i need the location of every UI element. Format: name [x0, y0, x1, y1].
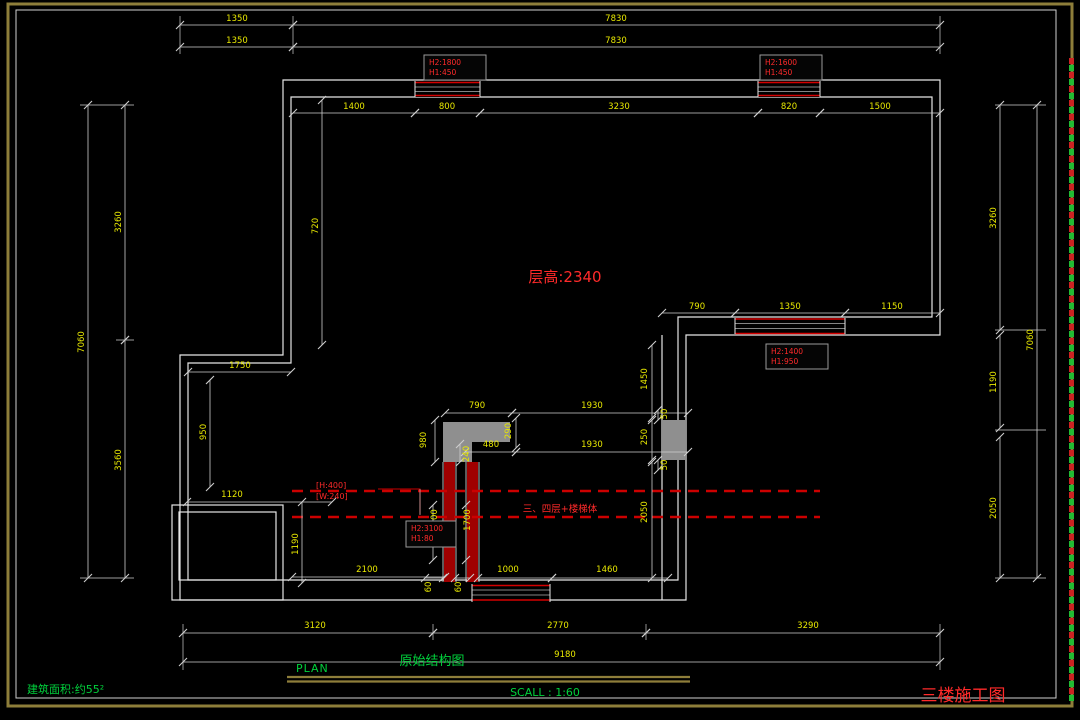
window-spec-box: H2:1400H1:950 — [766, 344, 828, 369]
floor-height-label: 层高:2340 — [528, 268, 601, 286]
dimension: 3560 — [114, 336, 129, 582]
dimension: 1500 — [816, 102, 944, 117]
dimension-label: 3560 — [114, 449, 124, 471]
dimension-label: 60 — [424, 582, 434, 593]
dimension: 3290 — [642, 621, 944, 637]
dimension-label: 790 — [469, 401, 485, 411]
dimension-label: 1460 — [596, 565, 618, 575]
dimension: 3260 — [114, 101, 129, 344]
beam-note-leader — [378, 489, 420, 514]
dimension: 3230 — [476, 102, 762, 117]
column-L-top — [443, 422, 510, 442]
dimension-label: 2050 — [640, 501, 650, 523]
dimension-label: 1400 — [343, 102, 365, 112]
dimension: 1350 — [176, 36, 297, 51]
dimension-label: 60 — [454, 582, 464, 593]
extension-lines — [80, 16, 1046, 670]
dimension-label: 290 — [504, 423, 514, 439]
window-mid-right — [735, 318, 845, 334]
dimension-label: 790 — [689, 302, 705, 312]
dimension-label: 9180 — [554, 650, 576, 660]
dimension-label: 240 — [462, 446, 472, 462]
dimension-label: 2050 — [989, 497, 999, 519]
window-top-right — [758, 81, 820, 97]
dimension-label: 7830 — [605, 36, 627, 46]
dimension: 2050 — [989, 433, 1004, 582]
dimension: 1400 — [289, 102, 419, 117]
dimension: 3260 — [989, 101, 1004, 334]
window-spec-line2: H1:450 — [765, 68, 792, 77]
window-spec-line1: H2:1400 — [771, 347, 803, 356]
dimension: 290 — [504, 414, 520, 452]
dimension-label: 7060 — [1026, 329, 1036, 351]
window-bottom — [472, 584, 550, 602]
dimension-label: 1700 — [463, 509, 473, 531]
dimension-label: 50 — [660, 460, 670, 471]
window-spec-line1: H2:1800 — [429, 58, 461, 67]
windows — [415, 81, 845, 602]
dimension: 2050 — [640, 458, 656, 582]
window-spec-line1: H2:1600 — [765, 58, 797, 67]
title-underline — [287, 677, 690, 682]
dimension-label: 720 — [311, 218, 321, 234]
dimension-label: 3290 — [797, 621, 819, 631]
dimension-labels: 1350783013507830140080032308201500706032… — [77, 14, 1041, 666]
dimension: 800 — [411, 102, 484, 117]
window-spec-box: H2:3100H1:80 — [406, 521, 456, 547]
dimension-label: 1930 — [581, 401, 603, 411]
dimension-label: 1350 — [226, 14, 248, 24]
dimension-label: 3120 — [304, 621, 326, 631]
area-label: 建筑面积:约55² — [27, 682, 104, 696]
window-top-left — [415, 81, 480, 97]
dimension: 1190 — [989, 331, 1004, 432]
dimension: 7060 — [1026, 101, 1041, 582]
dimension: 1120 — [183, 490, 336, 506]
dimension-label: 3260 — [989, 207, 999, 229]
dimension: 3120 — [179, 621, 437, 637]
dimension: 9180 — [179, 650, 944, 666]
dimension: 820 — [754, 102, 824, 117]
dimension-label: 980 — [419, 432, 429, 448]
dimension-label: 50 — [660, 409, 670, 420]
dimension: 7830 — [289, 14, 944, 29]
dimension-label: 250 — [640, 429, 650, 445]
scale-label: SCALL : 1:60 — [510, 686, 580, 699]
dimension-label: 1000 — [497, 565, 519, 575]
window-spec-line1: H2:3100 — [411, 524, 443, 533]
dimension-label: 1350 — [226, 36, 248, 46]
dimension: 1450 — [640, 341, 656, 422]
dimension: 720 — [311, 96, 326, 349]
dimension: 250 — [640, 416, 656, 464]
dimension: 1190 — [291, 498, 306, 587]
window-spec-box: H2:1800H1:450 — [424, 55, 486, 80]
dimension-label: 800 — [439, 102, 455, 112]
dimension: 980 — [419, 416, 439, 466]
beam-note-line1: [H:400] — [316, 481, 346, 490]
beam-note-line2: [W:240] — [316, 492, 348, 501]
exterior-walls — [172, 80, 940, 600]
sheet-title: 三楼施工图 — [921, 686, 1006, 706]
dimension-label: 2770 — [547, 621, 569, 631]
dimension: 2770 — [429, 621, 650, 637]
window-spec-box: H2:1600H1:450 — [760, 55, 822, 80]
floorplan-drawing: 1350783013507830140080032308201500706032… — [0, 0, 1080, 720]
dimension-label: 1350 — [779, 302, 801, 312]
dimension-label: 480 — [483, 440, 499, 450]
dimension: 7830 — [289, 36, 944, 51]
dimension: 790 — [658, 302, 739, 317]
wall-pier — [662, 420, 686, 460]
dimension-label: 1500 — [869, 102, 891, 112]
dimension-label: 3260 — [114, 211, 124, 233]
dimension-label: 1930 — [581, 440, 603, 450]
dimension-label: 2100 — [356, 565, 378, 575]
dimension: 790 — [441, 401, 516, 417]
dimension-label: 950 — [199, 424, 209, 440]
window-spec-line2: H1:950 — [771, 357, 798, 366]
dimension-label: 1450 — [640, 368, 650, 390]
cad-canvas[interactable]: 1350783013507830140080032308201500706032… — [0, 0, 1080, 720]
dimension-label: 7830 — [605, 14, 627, 24]
dimension: 1150 — [841, 302, 944, 317]
dimension: 7060 — [77, 101, 92, 582]
dimension-label: 820 — [781, 102, 797, 112]
dimension-label: 7060 — [77, 331, 87, 353]
window-spec-line2: H1:450 — [429, 68, 456, 77]
dimension-label: 1190 — [989, 371, 999, 393]
dimension: 1350 — [176, 14, 297, 29]
plan-label: PLAN — [296, 662, 329, 675]
dimension: 1350 — [731, 302, 849, 317]
dimension-label: 1150 — [881, 302, 903, 312]
dimension-label: 3230 — [608, 102, 630, 112]
dimension-label: 1120 — [221, 490, 243, 500]
dimension-label: 1190 — [291, 533, 301, 555]
dimension: 950 — [199, 376, 214, 491]
dimension-label: 1750 — [229, 361, 251, 371]
window-spec-line2: H1:80 — [411, 534, 434, 543]
demolish-note: 三、四层+楼梯体 — [523, 503, 598, 515]
drawing-title: 原始结构图 — [399, 654, 464, 669]
